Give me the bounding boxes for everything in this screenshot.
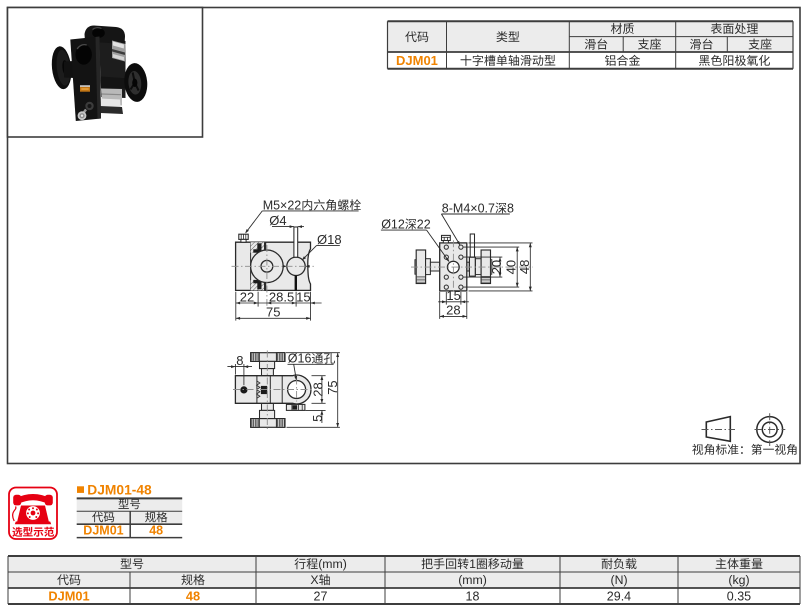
svg-text:22: 22 — [240, 289, 254, 304]
svg-text:M5×22: M5×22 — [263, 198, 302, 212]
svg-text:75: 75 — [325, 380, 340, 394]
svg-text:48: 48 — [186, 588, 200, 603]
svg-text:DJM01: DJM01 — [396, 53, 438, 68]
svg-text:22: 22 — [417, 218, 431, 232]
svg-text:28.5: 28.5 — [269, 289, 294, 304]
svg-text:27: 27 — [314, 589, 328, 603]
svg-text:15: 15 — [296, 290, 310, 305]
svg-text:8: 8 — [236, 353, 243, 368]
svg-text:8: 8 — [507, 201, 514, 215]
svg-text:48: 48 — [149, 524, 163, 538]
svg-text:1: 1 — [469, 557, 476, 571]
svg-text:28: 28 — [446, 303, 460, 318]
svg-text:Ø16: Ø16 — [288, 352, 312, 366]
svg-text:Ø12: Ø12 — [381, 218, 405, 232]
svg-text:(mm): (mm) — [318, 557, 347, 571]
svg-text:(N): (N) — [611, 573, 628, 587]
svg-text:Ø18: Ø18 — [317, 232, 342, 247]
svg-text:X: X — [310, 573, 318, 587]
svg-text:DJM01-48: DJM01-48 — [87, 483, 152, 498]
svg-text:DJM01: DJM01 — [48, 588, 89, 603]
svg-text:DJM01: DJM01 — [83, 524, 123, 538]
svg-text:18: 18 — [466, 589, 480, 603]
svg-text:0.35: 0.35 — [727, 589, 751, 603]
svg-text:(kg): (kg) — [728, 573, 749, 587]
svg-text:5: 5 — [310, 415, 325, 422]
svg-text:15: 15 — [446, 288, 460, 303]
svg-text:Ø4: Ø4 — [269, 213, 286, 228]
svg-text:20: 20 — [489, 260, 504, 274]
svg-text:(mm): (mm) — [458, 573, 487, 587]
svg-text:8-M4×0.7: 8-M4×0.7 — [442, 201, 495, 215]
svg-text:29.4: 29.4 — [607, 589, 631, 603]
svg-text:28: 28 — [310, 382, 325, 396]
svg-text:75: 75 — [266, 305, 280, 320]
svg-text:48: 48 — [517, 260, 532, 274]
